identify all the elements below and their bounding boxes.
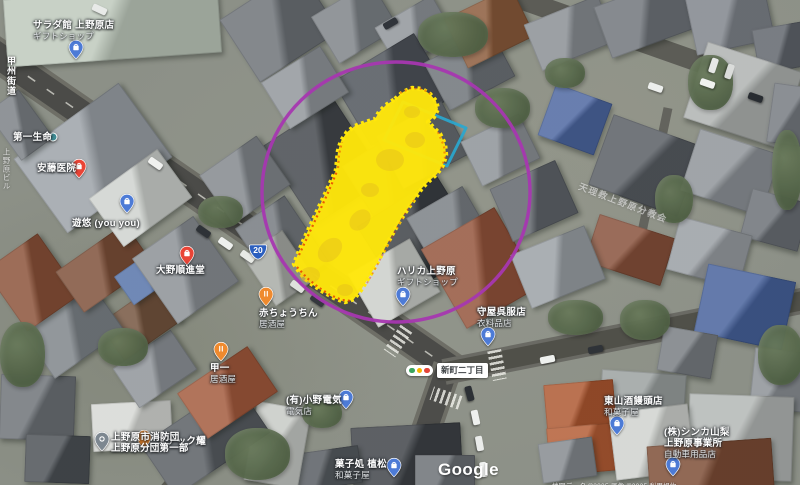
- place-category: 衣料品店: [477, 318, 526, 328]
- pin-harika[interactable]: [395, 287, 411, 307]
- place-name: 菓子処 植松: [335, 459, 387, 470]
- place-name: サラダ館 上野原店: [33, 20, 114, 31]
- label-moriya[interactable]: 守屋呉服店衣料品店: [477, 307, 526, 328]
- intersection-label[interactable]: 新町二丁目: [437, 363, 488, 378]
- pin-saladakan[interactable]: [68, 40, 84, 60]
- map-attribution[interactable]: 地図データ ©2025 画像 ©2025 利用規約: [552, 480, 677, 485]
- pin-moriya[interactable]: [480, 327, 496, 347]
- place-category: 和菓子屋: [604, 407, 663, 417]
- place-name: 甲一: [210, 363, 230, 374]
- pin-youyou[interactable]: [119, 194, 135, 214]
- label-higashiyama[interactable]: 東山酒饅頭店和菓子屋: [604, 396, 663, 417]
- pin-shinka[interactable]: [665, 457, 681, 477]
- place-name: 守屋呉服店: [477, 307, 526, 318]
- place-category: 電気店: [286, 406, 342, 416]
- place-category: ギフトショップ: [397, 277, 458, 287]
- label-saladakan[interactable]: サラダ館 上野原店ギフトショップ: [33, 20, 114, 41]
- place-name: 遊悠 (you you): [72, 218, 140, 229]
- traffic-light-icon: [406, 365, 433, 376]
- pin-akachochin[interactable]: [258, 287, 274, 307]
- pin-koichi[interactable]: [213, 342, 229, 362]
- pin-uematsu[interactable]: [386, 458, 402, 478]
- google-logo[interactable]: Google: [438, 460, 499, 480]
- map-canvas[interactable]: 天理教上野原分教会 上野原ビル 甲州街道 サラダ館 上野原店ギフトショップ第一生…: [0, 0, 800, 485]
- place-name: 安藤医院: [37, 163, 76, 174]
- pin-fire-brigade[interactable]: [94, 432, 110, 452]
- place-name: (有)小野電気: [286, 395, 342, 406]
- pins-layer: サラダ館 上野原店ギフトショップ第一生命安藤医院遊悠 (you you)大野順進…: [0, 0, 800, 485]
- place-name: 上野原市消防団: [111, 432, 180, 443]
- label-ono-denki[interactable]: (有)小野電気電気店: [286, 395, 342, 416]
- route-badge-number: 20: [249, 245, 268, 260]
- place-name-2: 上野原分団第一部: [111, 443, 189, 454]
- place-name: (株)シンカ山梨: [664, 427, 730, 438]
- place-name: ハリカ上野原: [397, 266, 456, 277]
- label-youyou[interactable]: 遊悠 (you you): [72, 218, 140, 229]
- label-harika[interactable]: ハリカ上野原ギフトショップ: [397, 266, 458, 287]
- place-name: 大野順進堂: [156, 265, 205, 276]
- pin-higashiyama[interactable]: [609, 416, 625, 436]
- place-category: 居酒屋: [259, 319, 318, 329]
- label-uematsu[interactable]: 菓子処 植松和菓子屋: [335, 459, 387, 480]
- label-shinka[interactable]: (株)シンカ山梨上野原事業所自動車用品店: [664, 427, 730, 459]
- place-name: 東山酒饅頭店: [604, 396, 663, 407]
- place-name: 赤ちょうちん: [259, 308, 318, 319]
- label-daiichi-seimei[interactable]: 第一生命: [13, 132, 52, 143]
- place-category: 和菓子屋: [335, 470, 387, 480]
- label-ando-clinic[interactable]: 安藤医院: [37, 163, 76, 174]
- place-name: 第一生命: [13, 132, 52, 143]
- pin-ono-junshindo[interactable]: [179, 246, 195, 266]
- label-fire-brigade[interactable]: 上野原市消防団上野原分団第一部: [111, 432, 189, 454]
- route-20-badge: 20: [249, 244, 268, 260]
- label-akachochin[interactable]: 赤ちょうちん居酒屋: [259, 308, 318, 329]
- place-category: 居酒屋: [210, 374, 236, 384]
- label-ono-junshindo[interactable]: 大野順進堂: [156, 265, 205, 276]
- place-name-2: 上野原事業所: [664, 438, 730, 449]
- place-category: ギフトショップ: [33, 31, 114, 41]
- place-category: 自動車用品店: [664, 449, 730, 459]
- label-koichi[interactable]: 甲一居酒屋: [210, 363, 236, 384]
